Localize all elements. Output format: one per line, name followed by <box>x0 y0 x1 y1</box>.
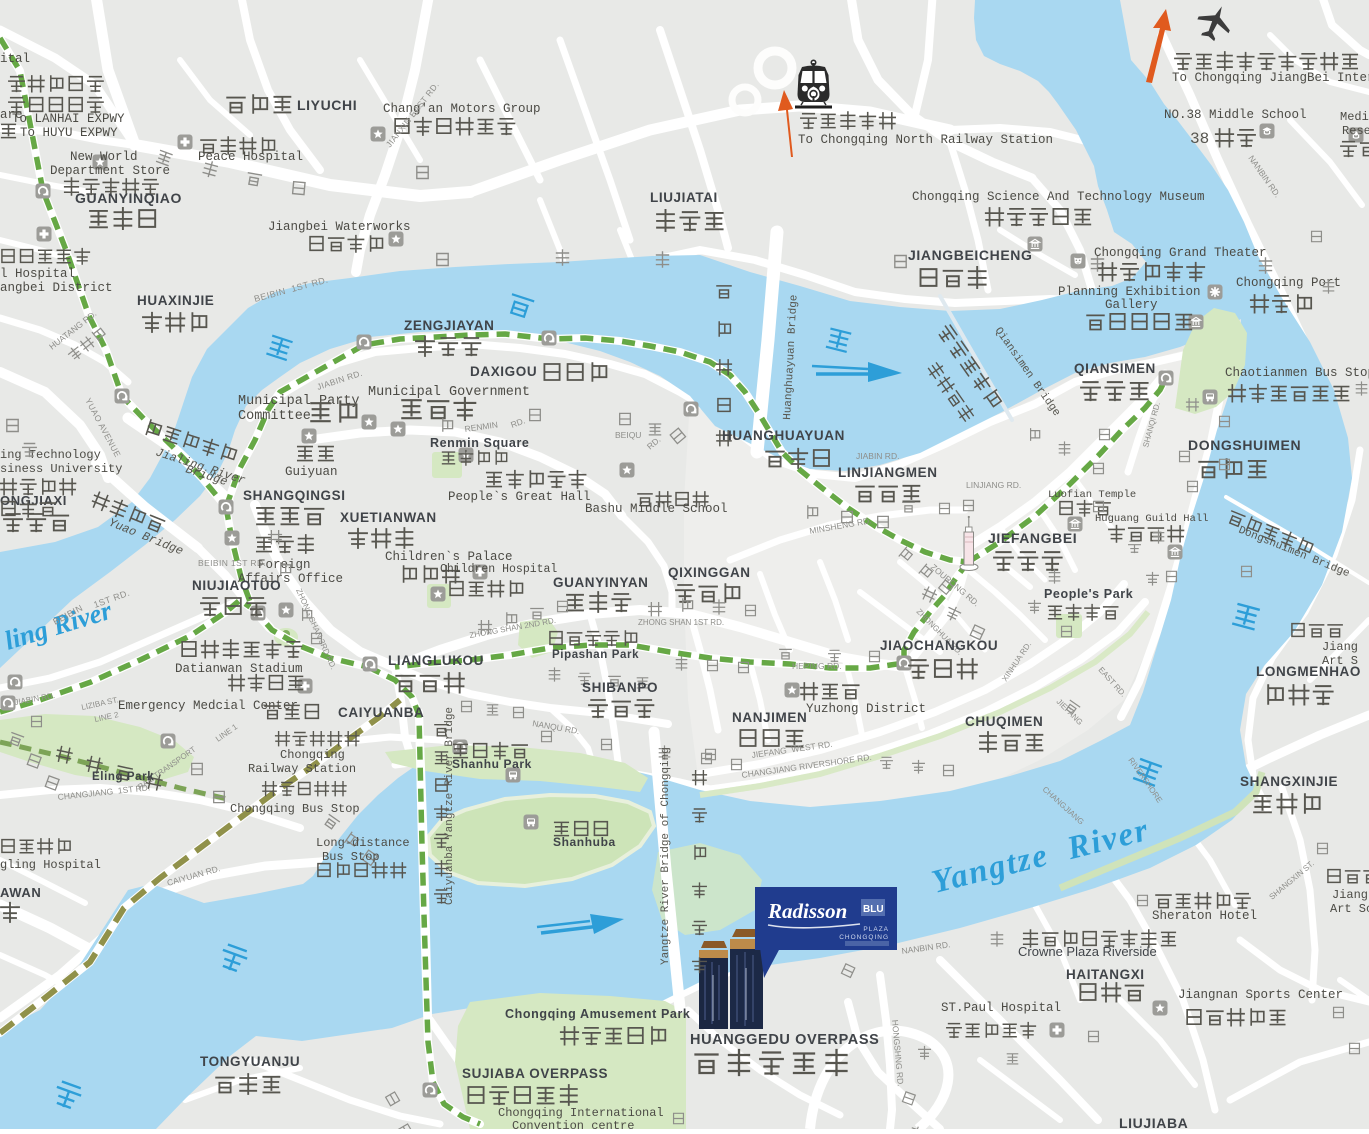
svg-text:Shanhuba: Shanhuba <box>553 835 616 849</box>
svg-text:Children`s Palace: Children`s Palace <box>385 550 513 564</box>
svg-text:People's Park: People's Park <box>1044 587 1133 601</box>
svg-text:To Chongqing North Railway Sta: To Chongqing North Railway Station <box>798 133 1053 147</box>
svg-text:Children Hospital: Children Hospital <box>440 563 557 576</box>
svg-text:Long-distance: Long-distance <box>316 836 410 850</box>
svg-text:New World: New World <box>70 150 138 164</box>
svg-text:HAITANGXI: HAITANGXI <box>1066 967 1145 982</box>
svg-text:Convention centre: Convention centre <box>512 1119 634 1129</box>
svg-text:Municipal Government: Municipal Government <box>368 385 530 400</box>
svg-text:JIAOCHANGKOU: JIAOCHANGKOU <box>880 638 998 653</box>
svg-text:AWAN: AWAN <box>0 885 41 900</box>
svg-text:LIUJIABA: LIUJIABA <box>1119 1115 1188 1129</box>
svg-text:Yangtze River Bridge of Chongq: Yangtze River Bridge of Chongqing <box>660 747 672 965</box>
svg-text:Caiyuanba Yangtze River Bridge: Caiyuanba Yangtze River Bridge <box>444 707 456 905</box>
svg-text:SHANGQINGSI: SHANGQINGSI <box>243 488 346 503</box>
svg-text:LINJIANG RD.: LINJIANG RD. <box>966 480 1021 490</box>
svg-text:NANJIMEN: NANJIMEN <box>732 710 807 725</box>
svg-text:BEIQU: BEIQU <box>615 430 641 440</box>
svg-text:To Chongqing JiangBei Internat: To Chongqing JiangBei Internat <box>1172 71 1369 85</box>
svg-text:XUETIANWAN: XUETIANWAN <box>340 510 437 525</box>
svg-text:Chongqing International: Chongqing International <box>498 1106 664 1120</box>
svg-text:Guiyuan: Guiyuan <box>285 465 338 479</box>
svg-text:SHIBANPO: SHIBANPO <box>582 680 658 695</box>
svg-text:Shanhu Park: Shanhu Park <box>452 757 532 771</box>
svg-text:LINJIANGMEN: LINJIANGMEN <box>838 465 938 480</box>
svg-text:Chongqing Science And Technolo: Chongqing Science And Technology Museum <box>912 190 1205 204</box>
svg-text:Bashu Middle School: Bashu Middle School <box>585 502 728 516</box>
svg-text:gling Hospital: gling Hospital <box>0 858 101 872</box>
svg-text:JIANGBEICHENG: JIANGBEICHENG <box>908 247 1032 263</box>
svg-text:SUJIABA OVERPASS: SUJIABA OVERPASS <box>462 1066 608 1081</box>
svg-text:ZENGJIAYAN: ZENGJIAYAN <box>404 318 495 333</box>
svg-text:Radisson: Radisson <box>767 899 847 923</box>
svg-text:Yuzhong District: Yuzhong District <box>806 702 926 716</box>
svg-text:Jiang: Jiang <box>1332 888 1368 902</box>
svg-text:Eling Park: Eling Park <box>92 771 154 783</box>
svg-text:LIYUCHI: LIYUCHI <box>297 97 357 113</box>
svg-text:CHONGQING: CHONGQING <box>839 934 889 941</box>
svg-text:LIUJIATAI: LIUJIATAI <box>650 190 718 205</box>
svg-text:Committee: Committee <box>238 409 311 424</box>
svg-text:Chongqing: Chongqing <box>280 748 345 762</box>
svg-text:To LANHAI EXPWY: To LANHAI EXPWY <box>12 112 125 126</box>
svg-text:DONGSHUIMEN: DONGSHUIMEN <box>1188 437 1301 453</box>
svg-text:Jiang: Jiang <box>1322 640 1358 654</box>
svg-text:Department Store: Department Store <box>50 164 170 178</box>
svg-text:BLU: BLU <box>863 904 884 915</box>
svg-text:Art Sc: Art Sc <box>1330 902 1369 916</box>
svg-text:HUAXINJIE: HUAXINJIE <box>137 293 214 308</box>
svg-text:ital: ital <box>0 52 30 66</box>
svg-text:are: are <box>0 108 23 122</box>
svg-text:DAXIGOU: DAXIGOU <box>470 364 537 379</box>
svg-text:Pipashan Park: Pipashan Park <box>552 649 639 661</box>
svg-text:Peace Hospital: Peace Hospital <box>198 150 303 164</box>
svg-text:QIXINGGAN: QIXINGGAN <box>668 565 751 580</box>
svg-text:People`s Great Hall: People`s Great Hall <box>448 490 591 504</box>
svg-text:CAIYUANBA: CAIYUANBA <box>338 705 424 720</box>
svg-text:TONGYUANJU: TONGYUANJU <box>200 1054 300 1069</box>
svg-text:JIABIN RD.: JIABIN RD. <box>856 451 899 461</box>
svg-text:ST.Paul Hospital: ST.Paul Hospital <box>941 1001 1061 1015</box>
svg-text:BEIBIN 1ST RD.: BEIBIN 1ST RD. <box>198 558 266 568</box>
svg-text:Chaotianmen Bus Stop: Chaotianmen Bus Stop <box>1225 366 1369 380</box>
svg-text:GUANYINQIAO: GUANYINQIAO <box>75 190 182 206</box>
svg-text:l Hospital: l Hospital <box>0 267 75 281</box>
svg-text:Rese: Rese <box>1342 124 1369 138</box>
svg-text:Huguang Guild Hall: Huguang Guild Hall <box>1095 513 1208 525</box>
svg-text:Bus Stop: Bus Stop <box>322 850 380 864</box>
svg-text:38: 38 <box>1190 130 1209 148</box>
svg-text:HEPING RD.: HEPING RD. <box>792 661 842 671</box>
svg-text:QIANSIMEN: QIANSIMEN <box>1074 361 1156 376</box>
svg-text:Chongqing Bus Stop: Chongqing Bus Stop <box>230 802 360 816</box>
svg-text:NO.38 Middle School: NO.38 Middle School <box>1164 108 1307 122</box>
svg-text:Planning Exhibition: Planning Exhibition <box>1058 285 1201 299</box>
svg-text:CHUQIMEN: CHUQIMEN <box>965 714 1043 729</box>
svg-text:HUANGGEDU OVERPASS: HUANGGEDU OVERPASS <box>690 1032 879 1048</box>
svg-text:Sheraton Hotel: Sheraton Hotel <box>1152 909 1257 923</box>
svg-text:NIUJIAOTUO: NIUJIAOTUO <box>192 578 281 593</box>
svg-text:Renmin Square: Renmin Square <box>430 436 530 450</box>
svg-text:ZHONG SHAN 1ST RD.: ZHONG SHAN 1ST RD. <box>638 618 724 627</box>
svg-text:Jiangnan Sports Center: Jiangnan Sports Center <box>1178 988 1343 1002</box>
svg-text:Luofian Temple: Luofian Temple <box>1048 489 1136 501</box>
svg-text:LIANGLUKOU: LIANGLUKOU <box>388 653 484 668</box>
svg-text:GUANYINYAN: GUANYINYAN <box>553 575 649 590</box>
svg-text:angbei District: angbei District <box>0 281 113 295</box>
svg-text:Chongqing Grand Theater: Chongqing Grand Theater <box>1094 246 1267 260</box>
svg-text:ing Technology: ing Technology <box>0 448 101 462</box>
svg-text:Medi: Medi <box>1340 110 1369 124</box>
svg-text:PLAZA: PLAZA <box>863 926 889 933</box>
svg-text:Gallery: Gallery <box>1105 298 1158 312</box>
svg-text:HUANGHUAYUAN: HUANGHUAYUAN <box>722 428 845 443</box>
svg-text:Jiangbei Waterworks: Jiangbei Waterworks <box>268 220 411 234</box>
svg-text:SHANGXINJIE: SHANGXINJIE <box>1240 774 1338 789</box>
svg-text:Chongqing Amusement Park: Chongqing Amusement Park <box>505 1007 690 1021</box>
svg-text:Datianwan Stadium: Datianwan Stadium <box>175 662 303 676</box>
svg-text:siness University: siness University <box>0 462 122 476</box>
svg-text:ONGJIAXI: ONGJIAXI <box>0 493 67 508</box>
svg-text:JIEFANGBEI: JIEFANGBEI <box>988 530 1077 546</box>
svg-text:Crowne Plaza Riverside: Crowne Plaza Riverside <box>1018 944 1157 959</box>
svg-text:Art S: Art S <box>1322 654 1358 668</box>
svg-text:Railway Station: Railway Station <box>248 762 356 776</box>
svg-text:To HUYU EXPWY: To HUYU EXPWY <box>20 126 118 140</box>
